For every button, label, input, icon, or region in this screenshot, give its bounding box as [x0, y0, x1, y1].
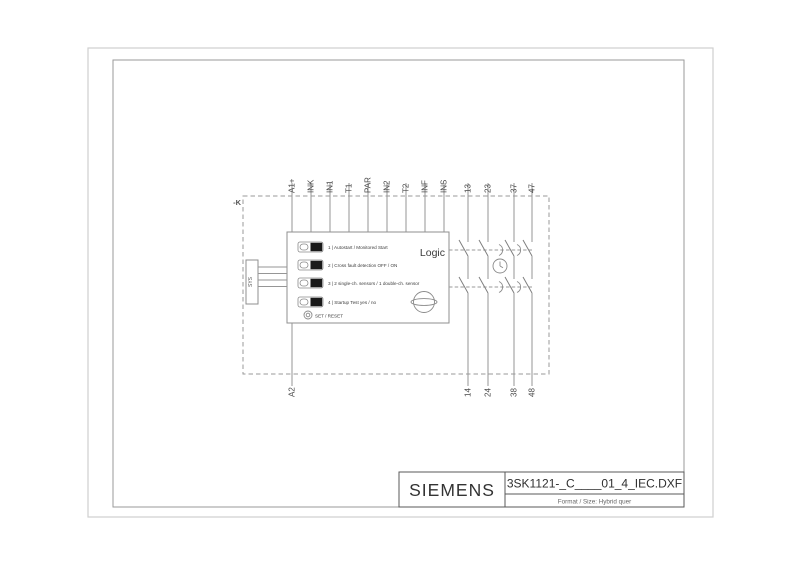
terminal-label: 24 [484, 388, 493, 397]
terminal-label: A2 [288, 387, 297, 397]
terminal-label: T2 [402, 183, 411, 193]
terminal-label: 38 [510, 388, 519, 397]
contact-output-lines [468, 183, 532, 386]
dip-switch-label: 2 | Cross fault detection OFF / ON [328, 263, 397, 268]
sys-connector-label: SYS [248, 276, 254, 287]
dip-switch-label: 3 | 2 single-ch. sensors / 1 double-ch. … [328, 281, 420, 286]
dip-switch-label: 4 | Startup Test yes / no [328, 300, 377, 305]
terminal-label: INK [307, 179, 316, 193]
sys-connector: SYS [246, 260, 287, 304]
terminal-label: IN2 [383, 180, 392, 193]
drawing-filename: 3SK1121-_C____01_4_IEC.DXF [507, 477, 682, 491]
terminal-label: INF [421, 180, 430, 193]
terminal-label: PAR [364, 177, 373, 193]
terminal-label: 13 [464, 184, 473, 193]
schematic-canvas: -K A1+ INK IN1 T1 PAR IN2 T2 [0, 0, 800, 565]
terminal-label: 14 [464, 388, 473, 397]
time-delay-clock-icon [493, 259, 507, 273]
terminal-labels-bottom: A2 14 24 38 48 [288, 387, 537, 397]
brand-logo: SIEMENS [409, 480, 495, 500]
dip-switch-label: 1 | Autostart / Monitored Start [328, 245, 388, 250]
contact-blades [459, 240, 532, 293]
terminal-label: A1+ [288, 178, 297, 193]
terminal-label: IN1 [326, 180, 335, 193]
logic-label: Logic [420, 247, 445, 259]
format-size-label: Format / Size: Hybrid quer [558, 499, 632, 506]
terminal-label: T1 [345, 183, 354, 193]
terminal-label: 47 [528, 184, 537, 193]
terminal-labels-top: A1+ INK IN1 T1 PAR IN2 T2 INF INS 13 23 … [288, 177, 537, 193]
title-block: SIEMENS 3SK1121-_C____01_4_IEC.DXF Forma… [399, 472, 684, 507]
terminal-label: 48 [528, 388, 537, 397]
set-reset-label: SET / RESET [315, 314, 343, 319]
terminal-label: 23 [484, 184, 493, 193]
device-tag: -K [233, 198, 241, 207]
terminal-label: INS [440, 180, 449, 193]
terminal-label: 37 [510, 184, 519, 193]
drawing-page: -K A1+ INK IN1 T1 PAR IN2 T2 [0, 0, 800, 565]
